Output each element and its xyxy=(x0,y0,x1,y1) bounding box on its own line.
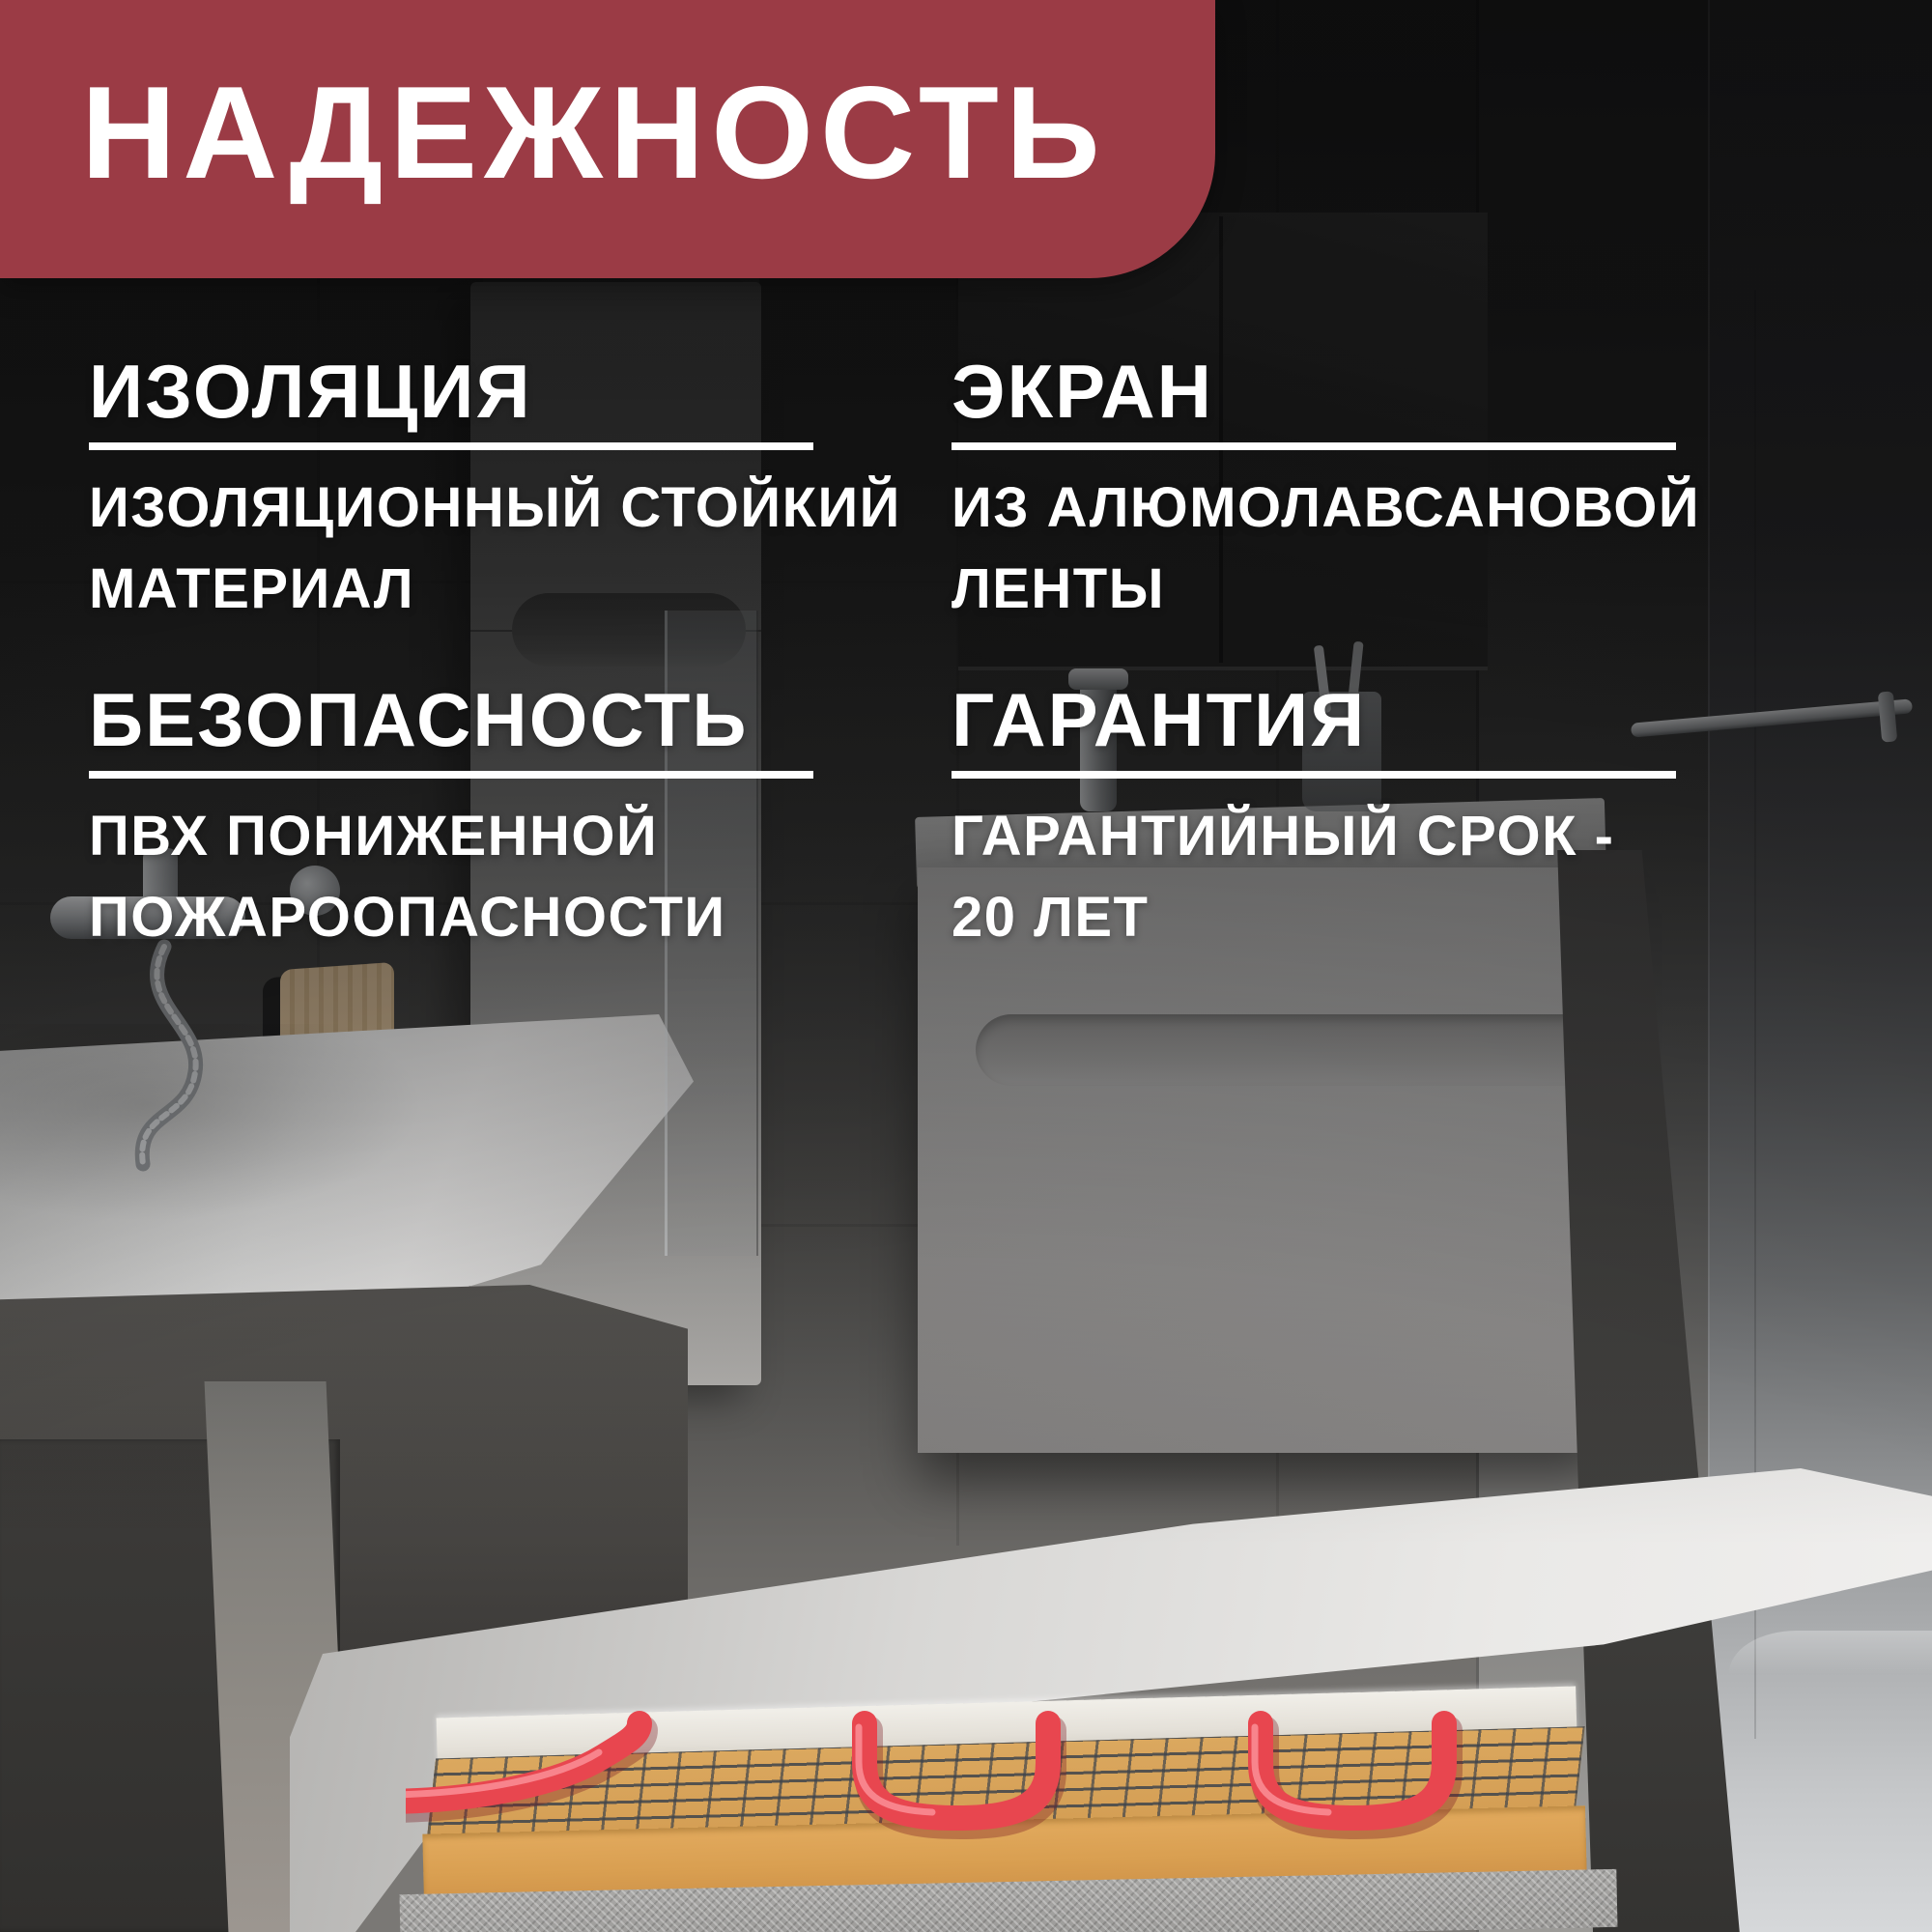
feature-body-line: ИЗ АЛЮМОЛАВСАНОВОЙ xyxy=(952,468,1802,549)
feature-heading: ИЗОЛЯЦИЯ xyxy=(89,354,939,429)
feature-body: ПВХ ПОНИЖЕННОЙ ПОЖАРООПАСНОСТИ xyxy=(89,796,939,958)
feature-divider xyxy=(952,442,1676,450)
infographic-page: НАДЕЖНОСТЬ ИЗОЛЯЦИЯ ИЗОЛЯЦИОННЫЙ СТОЙКИЙ… xyxy=(0,0,1932,1932)
feature-body-line: МАТЕРИАЛ xyxy=(89,549,939,630)
feature-body-line: ИЗОЛЯЦИОННЫЙ СТОЙКИЙ xyxy=(89,468,939,549)
feature-heading: ГАРАНТИЯ xyxy=(952,682,1802,757)
feature-warranty: ГАРАНТИЯ ГАРАНТИЙНЫЙ СРОК - 20 ЛЕТ xyxy=(952,682,1802,958)
feature-heading: БЕЗОПАСНОСТЬ xyxy=(89,682,939,757)
feature-body-line: ПОЖАРООПАСНОСТИ xyxy=(89,877,939,958)
feature-divider xyxy=(89,771,813,779)
reliability-banner: НАДЕЖНОСТЬ xyxy=(0,0,1215,278)
feature-heading: ЭКРАН xyxy=(952,354,1802,429)
feature-body: ГАРАНТИЙНЫЙ СРОК - 20 ЛЕТ xyxy=(952,796,1802,958)
feature-divider xyxy=(89,442,813,450)
feature-shield: ЭКРАН ИЗ АЛЮМОЛАВСАНОВОЙ ЛЕНТЫ xyxy=(952,354,1802,630)
feature-safety: БЕЗОПАСНОСТЬ ПВХ ПОНИЖЕННОЙ ПОЖАРООПАСНО… xyxy=(89,682,939,958)
feature-body-line: ПВХ ПОНИЖЕННОЙ xyxy=(89,796,939,877)
feature-insulation: ИЗОЛЯЦИЯ ИЗОЛЯЦИОННЫЙ СТОЙКИЙ МАТЕРИАЛ xyxy=(89,354,939,630)
feature-body: ИЗОЛЯЦИОННЫЙ СТОЙКИЙ МАТЕРИАЛ xyxy=(89,468,939,630)
feature-body-line: 20 ЛЕТ xyxy=(952,877,1802,958)
banner-title: НАДЕЖНОСТЬ xyxy=(81,67,1107,198)
feature-body: ИЗ АЛЮМОЛАВСАНОВОЙ ЛЕНТЫ xyxy=(952,468,1802,630)
feature-body-line: ГАРАНТИЙНЫЙ СРОК - xyxy=(952,796,1802,877)
feature-divider xyxy=(952,771,1676,779)
feature-body-line: ЛЕНТЫ xyxy=(952,549,1802,630)
dark-vignette-overlay xyxy=(0,0,1932,1932)
